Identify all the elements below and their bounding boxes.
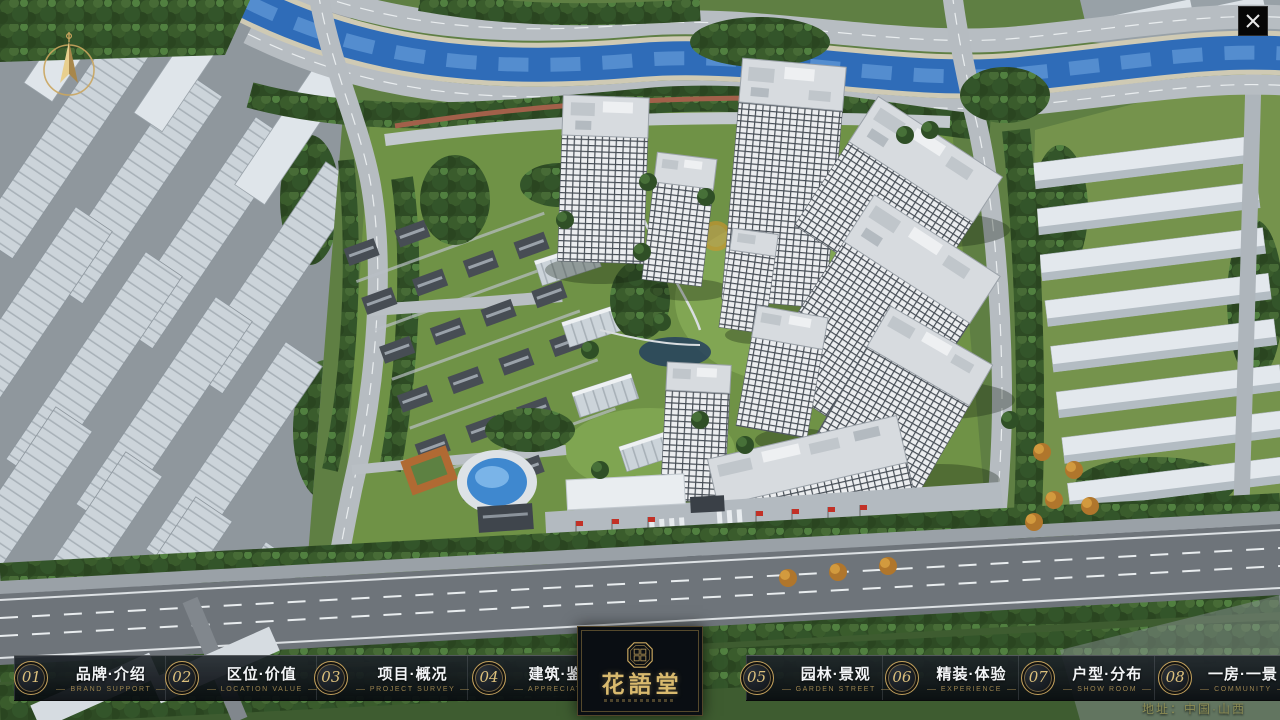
nav-item-brand-intro[interactable]: 01 品牌·介绍 BRAND SUPPORT [14,656,165,700]
tower [558,95,650,264]
nav-item-project-survey[interactable]: 03 项目·概况 PROJECT SURVEY [316,656,467,700]
nav-number: 04 [480,668,499,686]
nav-item-room-views[interactable]: 08 一房·一景 COMMUNITY [1154,656,1280,700]
seal-icon [625,640,655,670]
nav-number-badge: 03 [314,661,348,695]
bottom-navbar: 01 品牌·介绍 BRAND SUPPORT 02 区位·价值 LOCATION… [14,655,1266,701]
nav-number-badge: 04 [472,661,506,695]
nav-number: 05 [747,668,766,686]
nav-label-cn: 区位·价值 [227,663,297,684]
masterplan-render [0,0,1280,720]
navbar-left-half: 01 品牌·介绍 BRAND SUPPORT 02 区位·价值 LOCATION… [14,655,618,701]
nav-item-floorplan-distribution[interactable]: 07 户型·分布 SHOW ROOM [1018,656,1154,700]
logo-subtitle-line [604,699,676,702]
gate-complex [477,503,534,533]
gate-building [690,495,725,513]
nav-label-en: BRAND SUPPORT [56,686,165,693]
nav-label-en: EXPERIENCE [927,686,1016,693]
nav-label-en: SHOW ROOM [1063,686,1151,693]
x-icon [1246,14,1260,28]
nav-label-cn: 品牌·介绍 [76,663,146,684]
logo-title: 花語堂 [598,673,683,696]
nav-number: 02 [172,668,191,686]
nav-label-cn: 户型·分布 [1072,663,1142,684]
nav-number: 08 [1166,668,1185,686]
nav-number-badge: 08 [1158,661,1192,695]
nav-label-cn: 园林·景观 [801,663,871,684]
nav-item-garden-landscape[interactable]: 05 园林·景观 GARDEN STREET [746,656,882,700]
nav-item-location-value[interactable]: 02 区位·价值 LOCATION VALUE [165,656,316,700]
logo-panel[interactable]: 花語堂 [577,626,703,716]
nav-number-badge: 07 [1021,661,1055,695]
nav-label-cn: 一房·一景 [1208,663,1278,684]
nav-label-cn: 精装·体验 [936,663,1006,684]
nav-number-badge: 02 [165,661,199,695]
nav-label-en: GARDEN STREET [782,686,890,693]
nav-label-en: PROJECT SURVEY [356,686,470,693]
navbar-right-half: 05 园林·景观 GARDEN STREET 06 精装·体验 EXPERIEN… [746,655,1280,701]
close-button[interactable] [1238,6,1268,36]
nav-number: 01 [22,668,41,686]
nav-number-badge: 06 [885,661,919,695]
nav-label-en: COMMUNITY [1200,686,1280,693]
nav-label-en: LOCATION VALUE [207,686,317,693]
nav-number-badge: 01 [14,661,48,695]
entrance-canopy [566,474,685,510]
nav-number-badge: 05 [740,661,774,695]
nav-item-interior-experience[interactable]: 06 精装·体验 EXPERIENCE [882,656,1018,700]
nav-number: 07 [1029,668,1048,686]
project-address: 地址：中国·山西 [1142,700,1246,717]
nav-label-cn: 项目·概况 [378,663,448,684]
nav-number: 03 [321,668,340,686]
nav-number: 06 [892,668,911,686]
presentation-stage: 01 品牌·介绍 BRAND SUPPORT 02 区位·价值 LOCATION… [0,0,1280,720]
